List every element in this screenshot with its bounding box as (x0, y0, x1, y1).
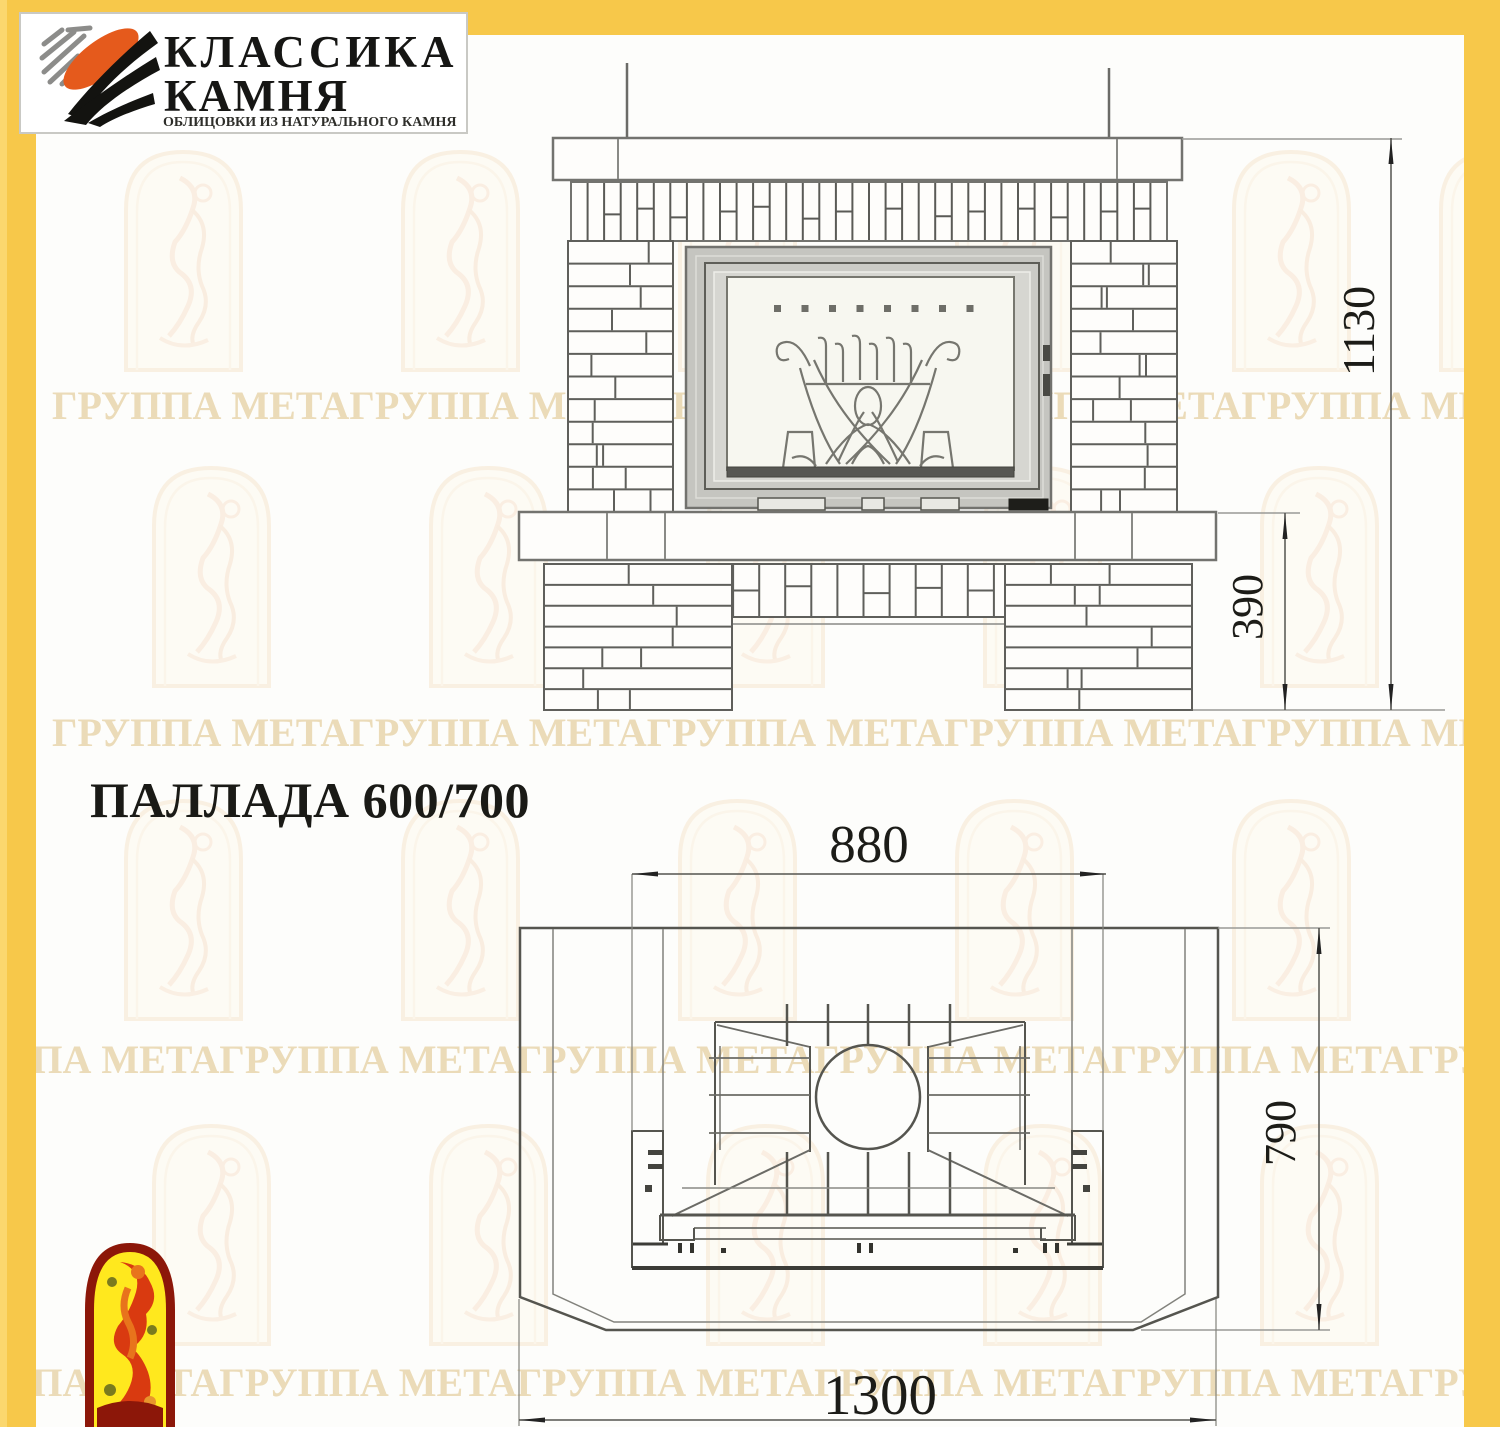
svg-text:1130: 1130 (1333, 286, 1384, 376)
svg-text:1300: 1300 (823, 1364, 937, 1427)
svg-text:ГРУППА МЕТАГРУППА МЕТАГРУППА М: ГРУППА МЕТАГРУППА МЕТАГРУППА МЕТАГРУППА … (52, 710, 1500, 755)
svg-text:КЛАССИКА: КЛАССИКА (164, 27, 458, 77)
svg-text:КАМНЯ: КАМНЯ (164, 71, 349, 121)
svg-text:ОБЛИЦОВКИ ИЗ НАТУРАЛЬНОГО КАМН: ОБЛИЦОВКИ ИЗ НАТУРАЛЬНОГО КАМНЯ (163, 115, 457, 130)
svg-text:ГРУППА МЕТАГРУППА МЕТАГРУППА М: ГРУППА МЕТАГРУППА МЕТАГРУППА МЕТАГРУППА … (0, 1037, 1500, 1082)
svg-text:390: 390 (1223, 574, 1272, 640)
svg-text:ГРУППА МЕТАГРУППА МЕТАГРУППА М: ГРУППА МЕТАГРУППА МЕТАГРУППА МЕТАГРУППА … (0, 1360, 1500, 1405)
svg-text:ПАЛЛАДА 600/700: ПАЛЛАДА 600/700 (90, 772, 530, 828)
svg-text:880: 880 (829, 816, 909, 874)
svg-text:790: 790 (1256, 1100, 1305, 1166)
